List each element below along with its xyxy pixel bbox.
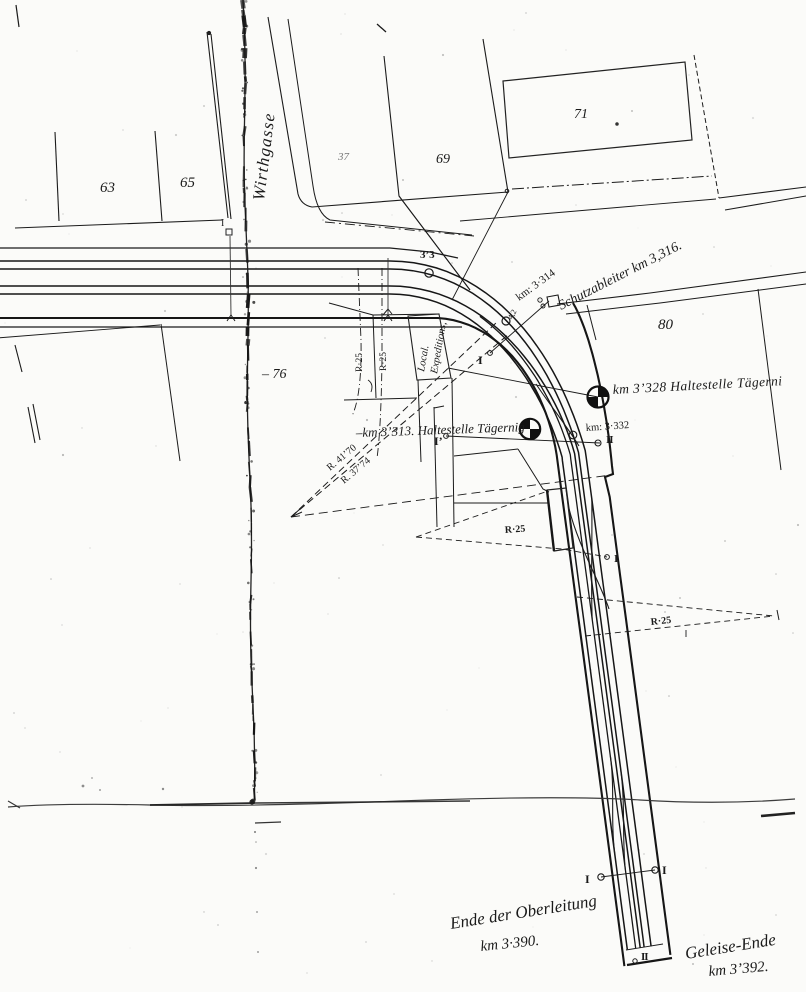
svg-text:km: 3·332: km: 3·332 (585, 420, 629, 434)
svg-text:Wirthgasse: Wirthgasse (249, 111, 279, 201)
svg-text:km 3’392.: km 3’392. (708, 959, 769, 980)
svg-text:I: I (662, 863, 667, 877)
svg-text:II: II (641, 951, 648, 963)
svg-text:80: 80 (658, 317, 674, 333)
svg-text:4,2: 4,2 (506, 308, 519, 321)
svg-text:km 3·390.: km 3·390. (480, 933, 540, 955)
svg-text:Ende der Oberleitung: Ende der Oberleitung (448, 891, 598, 933)
svg-text:Geleise-Ende: Geleise-Ende (684, 930, 778, 963)
svg-text:R·25: R·25 (650, 615, 672, 628)
svg-text:69: 69 (436, 152, 450, 167)
svg-text:I: I (614, 553, 618, 565)
svg-text:– 76: – 76 (261, 367, 287, 382)
svg-text:II: II (606, 434, 613, 446)
svg-text:R·25: R·25 (504, 524, 525, 536)
svg-text:37: 37 (337, 151, 350, 163)
svg-text:I: I (585, 872, 590, 886)
svg-text:63: 63 (100, 180, 115, 196)
svg-text:R·25: R·25 (379, 352, 389, 371)
svg-text:Expeditions,: Expeditions, (429, 321, 449, 375)
svg-text:Schutzableiter km 3,316.: Schutzableiter km 3,316. (556, 237, 684, 312)
svg-text:I: I (221, 218, 224, 229)
svg-text:km: 3·314: km: 3·314 (514, 267, 558, 304)
svg-text:R·25: R·25 (355, 353, 365, 372)
svg-text:3’3: 3’3 (420, 249, 435, 261)
svg-text:65: 65 (180, 175, 196, 191)
svg-text:71: 71 (574, 107, 588, 122)
svg-text:km 3’328 Haltestelle Tägerni: km 3’328 Haltestelle Tägerni (612, 373, 782, 397)
